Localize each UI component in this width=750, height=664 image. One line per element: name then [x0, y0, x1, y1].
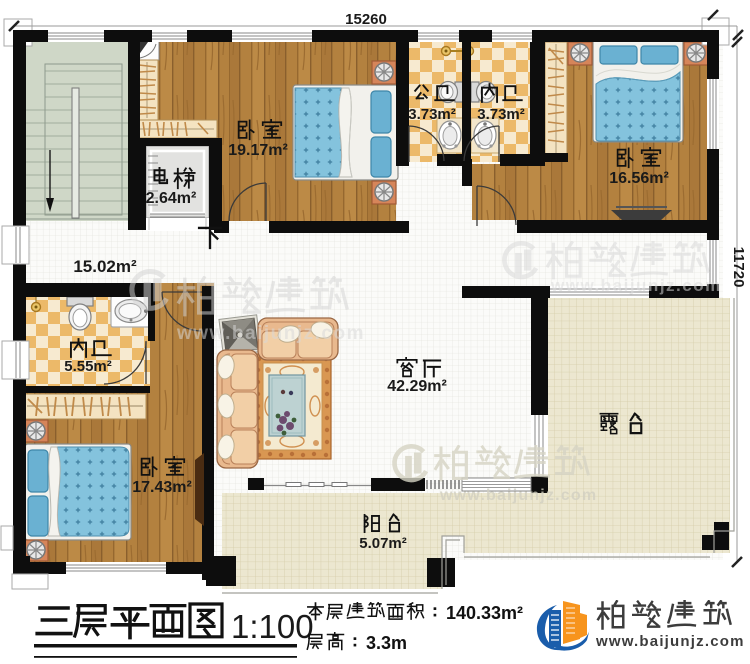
svg-text:42.29m²: 42.29m² — [387, 378, 447, 395]
svg-text:19.17m²: 19.17m² — [228, 142, 288, 159]
svg-text:17.43m²: 17.43m² — [132, 479, 192, 496]
svg-text:www.baijunjz.com: www.baijunjz.com — [595, 633, 745, 650]
svg-text:11720: 11720 — [730, 247, 747, 288]
svg-text:3.73m²: 3.73m² — [477, 106, 525, 123]
svg-text:2.64m²: 2.64m² — [146, 190, 197, 207]
svg-text:www.baijunjz.com: www.baijunjz.com — [550, 276, 722, 295]
svg-text:15260: 15260 — [345, 11, 387, 28]
svg-text:3.73m²: 3.73m² — [408, 106, 456, 123]
svg-text:1:100: 1:100 — [231, 608, 314, 645]
svg-text:5.55m²: 5.55m² — [64, 358, 112, 375]
svg-text:15.02m²: 15.02m² — [73, 257, 137, 276]
svg-text:140.33m²: 140.33m² — [446, 603, 523, 623]
svg-text:3.3m: 3.3m — [366, 633, 407, 653]
svg-text:16.56m²: 16.56m² — [609, 170, 669, 187]
svg-text:www.baijunjz.com: www.baijunjz.com — [176, 323, 365, 344]
svg-text:www.baijunjz.com: www.baijunjz.com — [439, 487, 597, 504]
svg-text:5.07m²: 5.07m² — [359, 535, 407, 552]
